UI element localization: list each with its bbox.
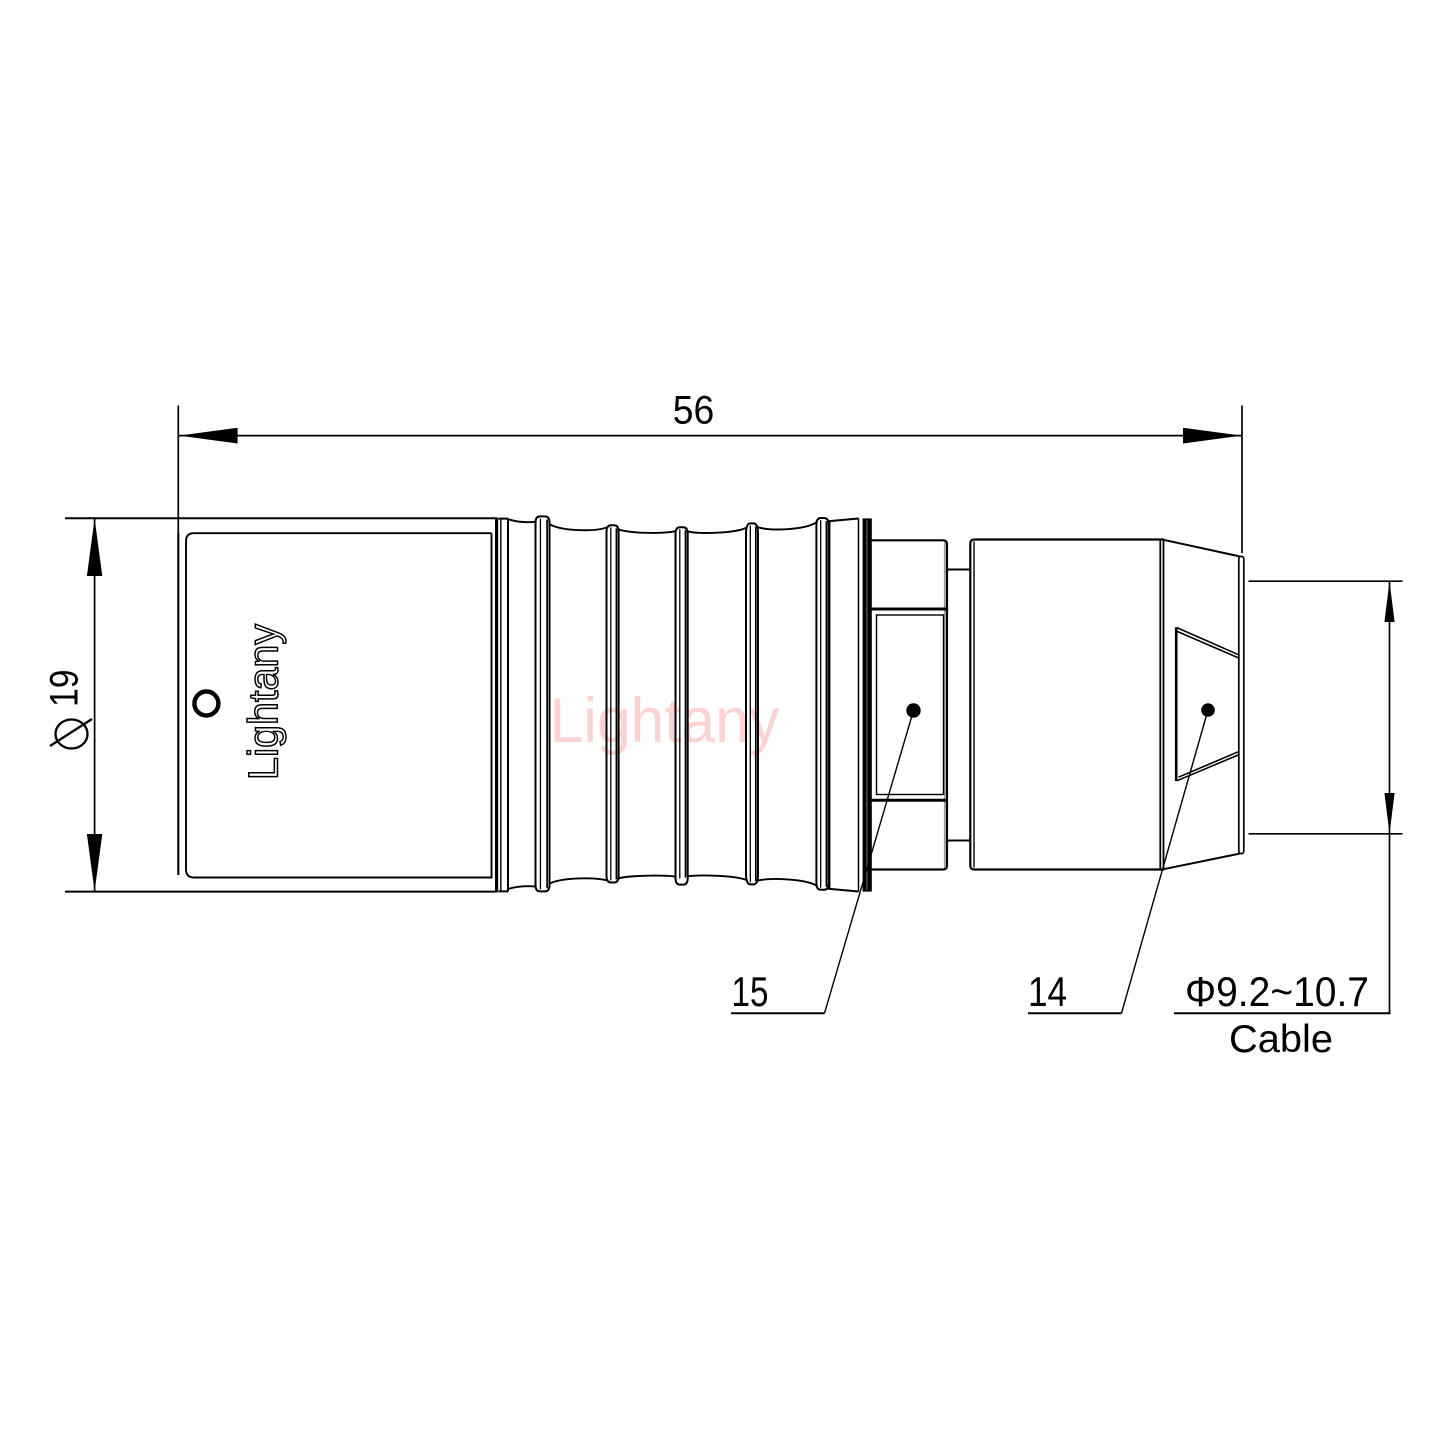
svg-text:Lightany: Lightany	[550, 686, 780, 756]
svg-text:Lightany: Lightany	[241, 624, 287, 780]
svg-text:56: 56	[673, 389, 715, 433]
svg-text:Φ9.2~10.7: Φ9.2~10.7	[1185, 968, 1369, 1015]
svg-text:14: 14	[1028, 968, 1067, 1015]
svg-text:19: 19	[43, 670, 87, 708]
svg-text:15: 15	[732, 968, 769, 1015]
svg-text:Cable: Cable	[1229, 1018, 1333, 1061]
